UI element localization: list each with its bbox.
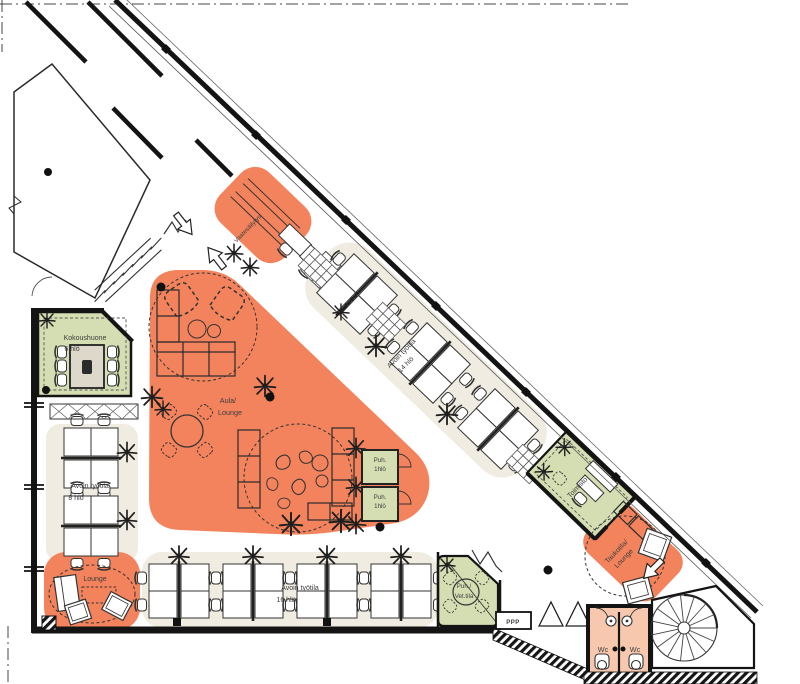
room-label: 1hlö <box>374 466 386 473</box>
column-dot <box>42 386 50 394</box>
room-label: Lounge <box>218 408 242 417</box>
wc-block <box>588 606 650 674</box>
room-label: Avoin työtila <box>71 483 109 490</box>
plant-icon <box>225 244 243 262</box>
column-dot <box>544 566 553 575</box>
column-dot <box>376 523 385 532</box>
room-label: Lounge <box>83 576 106 583</box>
room-label: 8 hlö <box>68 495 83 502</box>
hatched-wall <box>493 628 590 682</box>
bottom-right-block <box>493 586 757 684</box>
pentagon-room <box>9 64 150 298</box>
spiral-stair <box>651 586 754 668</box>
entry-door-leaf <box>539 602 563 626</box>
floor-plan-drawing: Vaatesäilytys Aula/ Lounge Avoin työtila… <box>0 0 800 684</box>
room-label: Avoin työtila <box>281 585 319 592</box>
entrance-arrow-out <box>202 243 231 273</box>
floor-plan-page: Vaatesäilytys Aula/ Lounge Avoin työtila… <box>0 0 800 684</box>
room-label: 1hlö <box>374 503 386 510</box>
room-label: Aula/ <box>220 396 236 405</box>
lattice-bench <box>50 404 138 419</box>
neighbour-wing <box>9 2 232 302</box>
vet-room <box>438 550 502 632</box>
plant-icon <box>241 258 259 276</box>
column-dot <box>266 393 275 402</box>
room-label: 6 hlö <box>64 346 79 353</box>
room-label: Wc <box>598 645 609 654</box>
toilet-icon <box>629 654 643 670</box>
room-label: Puh. <box>374 457 387 464</box>
kokoushuone-room <box>38 312 138 419</box>
column-dot <box>44 168 52 176</box>
hatched-wall <box>584 672 757 684</box>
ppp-label: PPP <box>506 620 520 626</box>
column-dot <box>157 283 166 292</box>
room-label: Vet.tila <box>455 593 474 600</box>
room-label: 16 hlö <box>276 597 295 604</box>
room-label: Kokoushuone <box>64 335 107 342</box>
room-label: Wc <box>630 645 641 654</box>
room-label: Puh./ <box>457 583 472 590</box>
toilet-icon <box>595 654 609 670</box>
room-label: Puh. <box>374 494 387 501</box>
